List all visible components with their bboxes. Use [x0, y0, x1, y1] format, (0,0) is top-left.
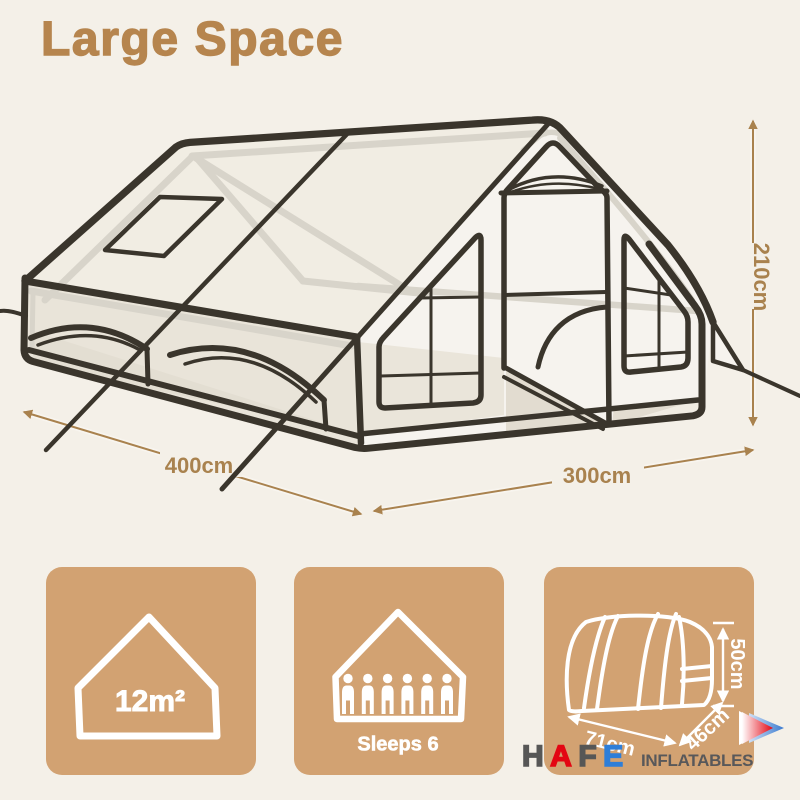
svg-text:46cm: 46cm: [681, 704, 733, 755]
svg-text:300cm: 300cm: [563, 463, 632, 488]
svg-text:210cm: 210cm: [749, 243, 774, 312]
svg-text:12m²: 12m²: [115, 685, 185, 718]
svg-text:50cm: 50cm: [726, 638, 748, 689]
svg-text:400cm: 400cm: [165, 453, 234, 478]
svg-text:Sleeps 6: Sleeps 6: [357, 734, 438, 756]
